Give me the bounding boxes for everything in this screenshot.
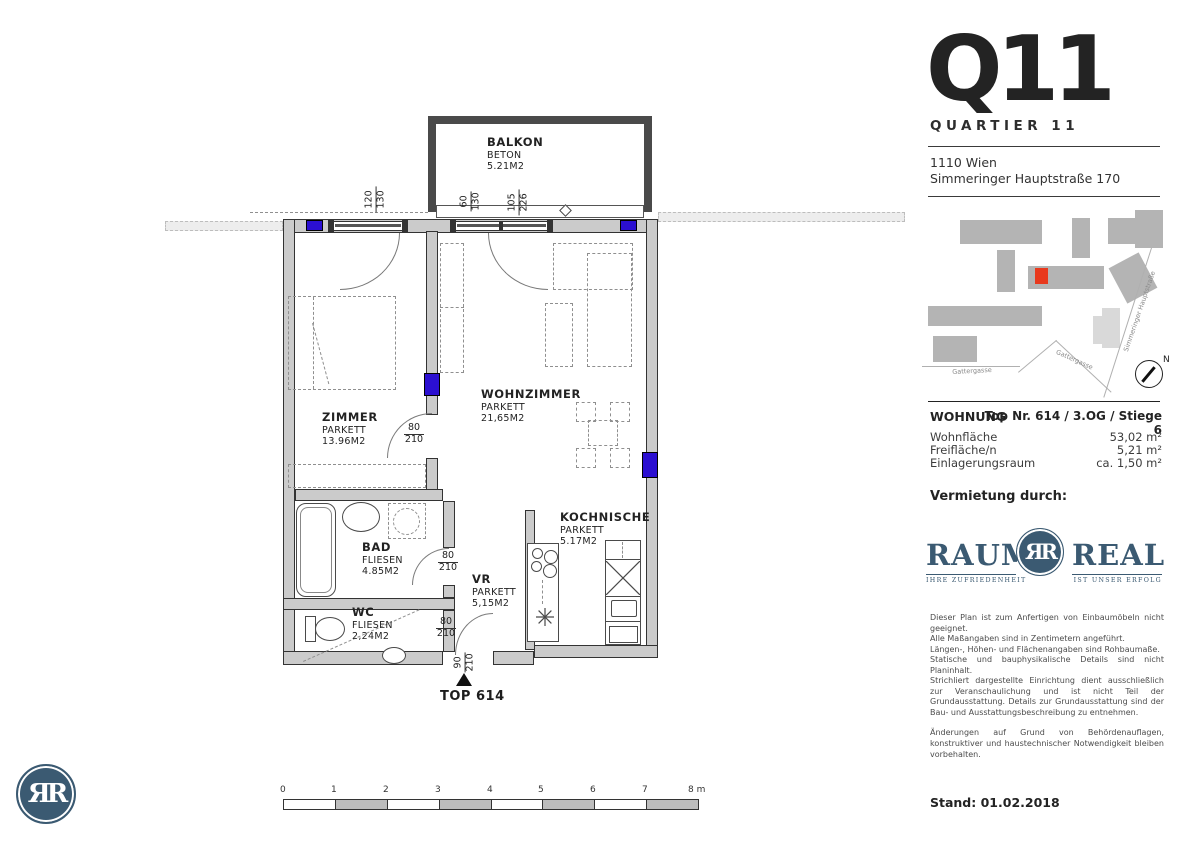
room-finish: FLIESEN — [352, 620, 393, 631]
scale-segment — [336, 800, 388, 809]
counter-divider — [605, 621, 641, 622]
entry-arrow — [456, 673, 472, 686]
room-finish: PARKETT — [560, 525, 650, 536]
shaft-marker — [620, 220, 637, 231]
wohnung-row-value: 53,02 m² — [930, 430, 1162, 444]
dashed-extension-line — [250, 212, 428, 213]
raumreal-word-right: REAL — [1072, 538, 1165, 572]
disclaimer-line: Strichliert dargestellte Einrichtung die… — [930, 676, 1164, 718]
dim-denominator: 130 — [377, 190, 388, 208]
scale-tick: 8 m — [688, 785, 714, 795]
wardrobe-zimmer — [288, 464, 426, 488]
stand-date: Stand: 01.02.2018 — [930, 795, 1060, 810]
shaft-marker — [306, 220, 323, 231]
scale-tick: 5 — [538, 785, 564, 795]
divider — [928, 146, 1160, 147]
neighbor-wall-right — [658, 212, 905, 222]
balcony-wall-left — [428, 116, 436, 212]
bed — [288, 296, 396, 390]
cooktop-burner — [532, 548, 543, 559]
wall-east — [646, 219, 658, 658]
cooktop-burner — [543, 564, 557, 578]
room-area: 5.21M2 — [487, 161, 543, 172]
scale-segment — [595, 800, 647, 809]
scale-segment — [440, 800, 492, 809]
project-logo: Q11 — [926, 28, 1110, 112]
raumreal-circle-monogram: ЯR — [1016, 528, 1064, 576]
raumreal-monogram-logo: ЯR — [16, 764, 76, 824]
room-area: 4.85M2 — [362, 566, 403, 577]
map-building-light — [1102, 308, 1120, 348]
door-height: 210 — [405, 435, 423, 446]
kitchen-sink-symbol — [534, 606, 556, 628]
room-name: ZIMMER — [322, 411, 378, 425]
room-area: 5,15M2 — [472, 598, 516, 609]
wall-bad-east-lower — [443, 585, 455, 598]
scale-segment — [647, 800, 698, 809]
room-area: 13.96M2 — [322, 436, 378, 447]
divider — [928, 401, 1160, 402]
room-name: WC — [352, 606, 393, 620]
wall-bad-east-upper — [443, 501, 455, 548]
dim-balcony-door: 60 130 — [460, 183, 483, 219]
disclaimer-line: Alle Maßangaben sind in Zentimetern ange… — [930, 634, 1164, 645]
cooktop-burner — [531, 561, 542, 572]
address-line-1: 1110 Wien — [930, 155, 997, 170]
window-glass — [335, 224, 401, 227]
disclaimer-paragraph-2: Änderungen auf Grund von Behördenauflage… — [930, 728, 1164, 760]
door-size-wc: 80 210 — [428, 617, 464, 640]
scale-tick: 3 — [435, 785, 461, 795]
scale-tick: 7 — [642, 785, 668, 795]
dim-window-zimmer: 120 130 — [365, 181, 388, 217]
disclaimer-line: Längen-, Höhen- und Flächenangaben sind … — [930, 645, 1164, 656]
unit-number-label: TOP 614 — [440, 689, 505, 704]
kitchen-end-cabinet — [609, 626, 638, 643]
map-unit-marker — [1035, 268, 1048, 284]
washbasin — [342, 502, 380, 532]
room-name: BALKON — [487, 136, 543, 150]
door-size-bad: 80 210 — [430, 551, 466, 574]
wall-south-mid — [493, 651, 534, 665]
room-label-bad: BAD FLIESEN 4.85M2 — [362, 541, 403, 577]
room-area: 21,65M2 — [481, 413, 581, 424]
scale-tick: 0 — [280, 785, 306, 795]
divider — [928, 196, 1160, 197]
room-finish: PARKETT — [481, 402, 581, 413]
room-name: KOCHNISCHE — [560, 511, 650, 525]
neighbor-wall-left — [165, 221, 283, 231]
dining-chair — [610, 448, 630, 468]
scale-tick: 4 — [487, 785, 513, 795]
room-area: 2,24M2 — [352, 631, 393, 642]
room-name: BAD — [362, 541, 403, 555]
oven — [611, 600, 637, 617]
room-label-vr: VR PARKETT 5,15M2 — [472, 573, 516, 609]
compass-north-label: N — [1163, 355, 1170, 365]
scale-segment — [543, 800, 595, 809]
counter-divider — [605, 559, 641, 560]
room-label-zimmer: ZIMMER PARKETT 13.96M2 — [322, 411, 378, 447]
disclaimer-text: Dieser Plan ist zum Anfertigen von Einba… — [930, 613, 1164, 760]
map-building — [960, 220, 1042, 244]
sofa-long — [587, 253, 632, 367]
counter-dash — [542, 580, 543, 604]
balcony-wall-top — [428, 116, 652, 124]
washing-machine-drum — [393, 508, 420, 535]
disclaimer-line: Dieser Plan ist zum Anfertigen von Einba… — [930, 613, 1164, 634]
map-building — [997, 250, 1015, 292]
disclaimer-line: Statische und bauphysikalische Details s… — [930, 655, 1164, 676]
door-height: 210 — [466, 653, 477, 671]
wohnung-row-value: 5,21 m² — [930, 443, 1162, 457]
window-mullion — [499, 221, 503, 231]
room-name: WOHNZIMMER — [481, 388, 581, 402]
shaft-marker — [642, 452, 658, 478]
cooktop-burner — [544, 550, 558, 564]
toilet-bowl — [315, 617, 345, 641]
street-label: Gattergasse — [952, 366, 992, 376]
scale-segment — [388, 800, 440, 809]
window-jamb — [402, 220, 408, 232]
room-area: 5.17M2 — [560, 536, 650, 547]
map-building — [928, 306, 1042, 326]
dining-chair — [610, 402, 630, 422]
scale-tick: 2 — [383, 785, 409, 795]
map-road — [1018, 340, 1057, 373]
room-finish: PARKETT — [472, 587, 516, 598]
scale-segment — [492, 800, 544, 809]
window-jamb — [450, 220, 456, 232]
raumreal-tagline-right: IST UNSER ERFOLG — [1072, 574, 1162, 584]
floorplan-sheet: BALKON BETON 5.21M2 120 130 60 130 105 2… — [0, 0, 1200, 849]
room-label-wc: WC FLIESEN 2,24M2 — [352, 606, 393, 642]
wardrobe-divider — [440, 307, 464, 308]
room-label-wohnzimmer: WOHNZIMMER PARKETT 21,65M2 — [481, 388, 581, 424]
street-label: Gattergasse — [1055, 348, 1094, 371]
map-building — [933, 336, 977, 362]
door-size-zimmer: 80 210 — [396, 423, 432, 446]
site-map: Gattergasse Gattergasse Simmeringer Haup… — [920, 203, 1170, 399]
vermietung-label: Vermietung durch: — [930, 489, 1067, 504]
dim-denominator: 226 — [520, 193, 531, 211]
door-height: 210 — [439, 563, 457, 574]
scale-segment — [284, 800, 336, 809]
room-finish: BETON — [487, 150, 543, 161]
room-label-balkon: BALKON BETON 5.21M2 — [487, 136, 543, 172]
dining-table — [588, 420, 618, 446]
address-line-2: Simmeringer Hauptstraße 170 — [930, 171, 1120, 186]
wc-stool — [382, 647, 406, 664]
map-building — [1135, 210, 1163, 248]
wohnung-row-value: ca. 1,50 m² — [930, 456, 1162, 470]
wall-south-kitchen — [534, 645, 658, 658]
scale-bar — [283, 799, 699, 810]
room-label-kochnische: KOCHNISCHE PARKETT 5.17M2 — [560, 511, 650, 547]
bed-headboard-line — [313, 297, 314, 389]
dim-denominator: 130 — [472, 192, 483, 210]
fridge-cross-symbol — [606, 561, 640, 595]
dining-chair — [576, 448, 596, 468]
map-building — [1072, 218, 1090, 258]
window-jamb — [547, 220, 553, 232]
scale-tick: 1 — [331, 785, 357, 795]
spacer — [930, 718, 1164, 728]
counter-divider — [605, 596, 641, 597]
window-jamb — [328, 220, 334, 232]
balcony-wall-right — [644, 116, 652, 212]
bathtub-inner — [300, 507, 332, 593]
project-subtitle: QUARTIER 11 — [930, 118, 1079, 134]
wall-bad-north — [295, 489, 443, 501]
door-height: 210 — [437, 629, 455, 640]
shaft-marker — [424, 373, 440, 396]
window-swing-arc-zimmer — [340, 233, 400, 290]
scale-tick: 6 — [590, 785, 616, 795]
window-swing-arc-wohnzimmer — [488, 233, 548, 290]
wardrobe-wohnzimmer — [440, 243, 464, 373]
window-zimmer — [333, 221, 403, 231]
room-finish: FLIESEN — [362, 555, 403, 566]
room-finish: PARKETT — [322, 425, 378, 436]
dim-balcony-window: 105 226 — [508, 184, 531, 220]
raumreal-tagline-left: IHRE ZUFRIEDENHEIT — [926, 574, 1016, 584]
room-name: VR — [472, 573, 516, 587]
sofa-short — [545, 303, 573, 367]
